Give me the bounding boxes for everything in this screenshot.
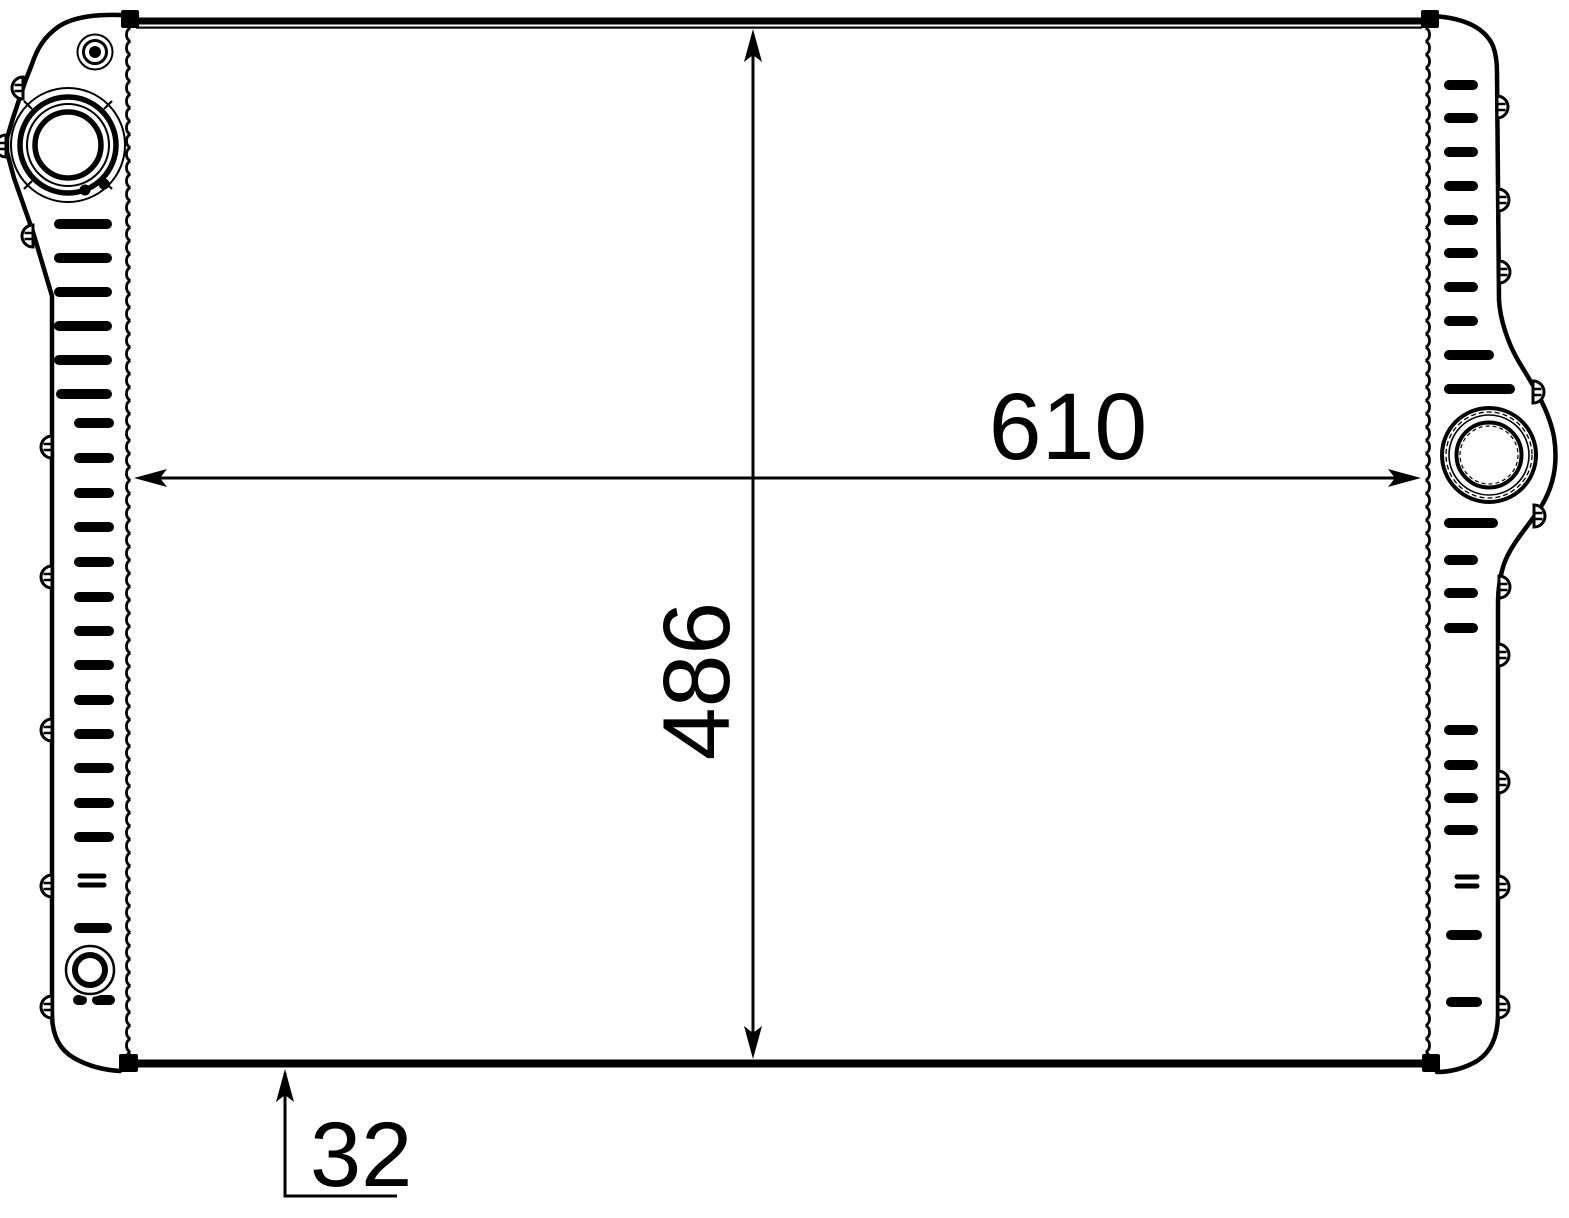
radiator-technical-drawing: 610 486 32 xyxy=(0,0,1569,1218)
port-tab xyxy=(99,179,110,190)
radiator-core xyxy=(119,10,1440,1072)
drawing-canvas: 610 486 32 xyxy=(0,0,1569,1218)
right-tank-double-hatch xyxy=(1457,877,1477,886)
left-tank xyxy=(0,15,137,1071)
port-tab xyxy=(80,185,91,196)
left-tank-double-hatch xyxy=(80,876,104,885)
core-bottom-plate xyxy=(136,1060,1422,1068)
right-tank-outline xyxy=(1433,16,1556,1072)
right-outlet-port xyxy=(1438,404,1540,506)
corner-block-top-right xyxy=(1421,10,1439,28)
height-dimension-label: 486 xyxy=(644,602,750,761)
width-dimension-label: 610 xyxy=(989,374,1148,480)
right-tank-clips xyxy=(1497,96,1545,1018)
right-tank xyxy=(1433,16,1556,1072)
core-left-serrated-edge xyxy=(123,28,132,1059)
left-inlet-port xyxy=(10,87,126,203)
core-top-plate-inner-line xyxy=(136,27,1422,29)
core-right-serrated-edge xyxy=(1424,28,1433,1059)
left-drain-port xyxy=(63,943,117,997)
core-top-plate xyxy=(136,18,1422,25)
depth-dimension-label: 32 xyxy=(310,1104,412,1206)
corner-block-bottom-right xyxy=(1422,1054,1440,1072)
right-tank-hatch-marks xyxy=(1449,85,1510,1002)
corner-block-top-left xyxy=(121,10,139,28)
bolt-boss xyxy=(76,33,114,71)
dimension-depth: 32 xyxy=(276,1069,412,1206)
dimension-width: 610 xyxy=(134,374,1421,487)
dimension-height: 486 xyxy=(644,29,762,1059)
corner-block-bottom-left xyxy=(119,1054,138,1072)
